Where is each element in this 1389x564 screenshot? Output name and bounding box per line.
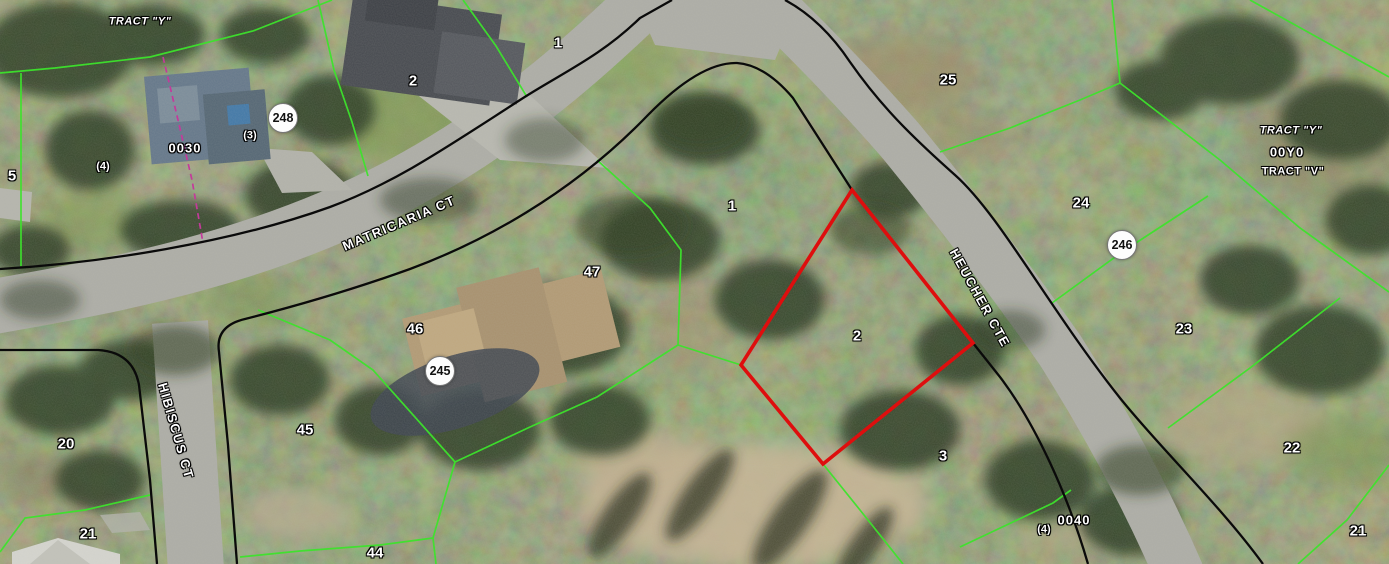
- photo-grain: [0, 0, 1389, 564]
- map-canvas: [0, 0, 1389, 564]
- aerial-parcel-map[interactable]: 12255124474622345202232121440030(4)(3)00…: [0, 0, 1389, 564]
- aerial-imagery-layer: [0, 0, 1389, 564]
